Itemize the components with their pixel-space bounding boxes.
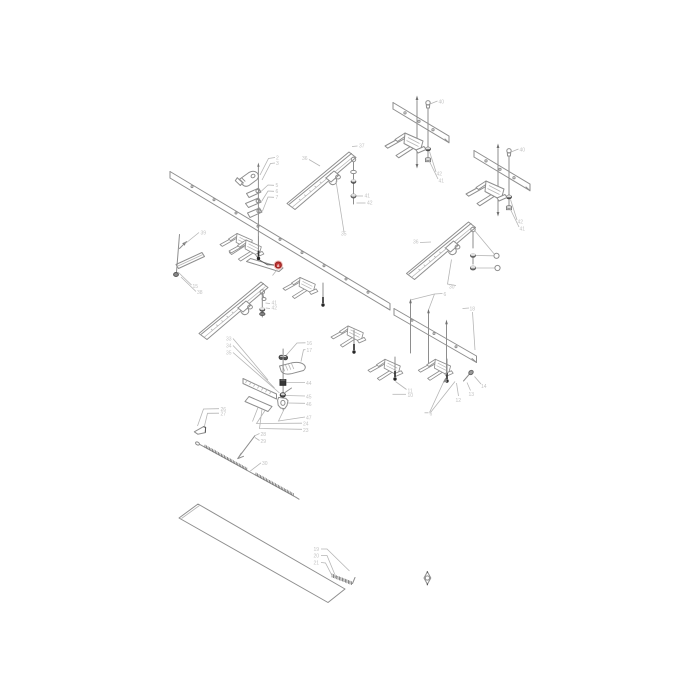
svg-text:12: 12: [456, 398, 462, 404]
svg-text:27: 27: [221, 412, 227, 418]
svg-text:42: 42: [367, 201, 373, 207]
svg-text:38: 38: [197, 290, 203, 296]
svg-text:30: 30: [262, 461, 268, 467]
svg-text:7: 7: [276, 195, 279, 201]
svg-text:6: 6: [430, 412, 433, 418]
svg-text:37: 37: [359, 144, 365, 150]
svg-text:41: 41: [365, 194, 371, 200]
svg-text:35: 35: [341, 232, 347, 238]
svg-text:35: 35: [226, 351, 232, 357]
svg-text:30: 30: [449, 285, 455, 291]
svg-text:42: 42: [272, 306, 278, 312]
svg-text:36: 36: [302, 156, 308, 162]
svg-text:36: 36: [413, 240, 419, 246]
svg-text:45: 45: [306, 395, 312, 401]
svg-text:19: 19: [314, 547, 320, 553]
svg-text:21: 21: [314, 561, 320, 567]
svg-text:18: 18: [470, 307, 476, 313]
svg-text:47: 47: [306, 416, 312, 422]
svg-text:13: 13: [469, 392, 475, 398]
svg-text:33: 33: [226, 337, 232, 343]
svg-text:16: 16: [307, 341, 313, 347]
svg-text:24: 24: [303, 422, 309, 428]
svg-text:46: 46: [306, 402, 312, 408]
svg-text:10: 10: [408, 393, 414, 399]
svg-text:6: 6: [444, 292, 447, 298]
svg-text:29: 29: [261, 439, 267, 445]
svg-text:3: 3: [276, 161, 279, 167]
svg-text:34: 34: [226, 344, 232, 350]
svg-text:17: 17: [307, 348, 313, 354]
svg-text:23: 23: [303, 428, 309, 434]
svg-text:28: 28: [261, 432, 267, 438]
svg-text:44: 44: [306, 381, 312, 387]
svg-text:20: 20: [314, 554, 320, 560]
svg-text:14: 14: [481, 384, 487, 390]
svg-text:39: 39: [201, 231, 207, 237]
